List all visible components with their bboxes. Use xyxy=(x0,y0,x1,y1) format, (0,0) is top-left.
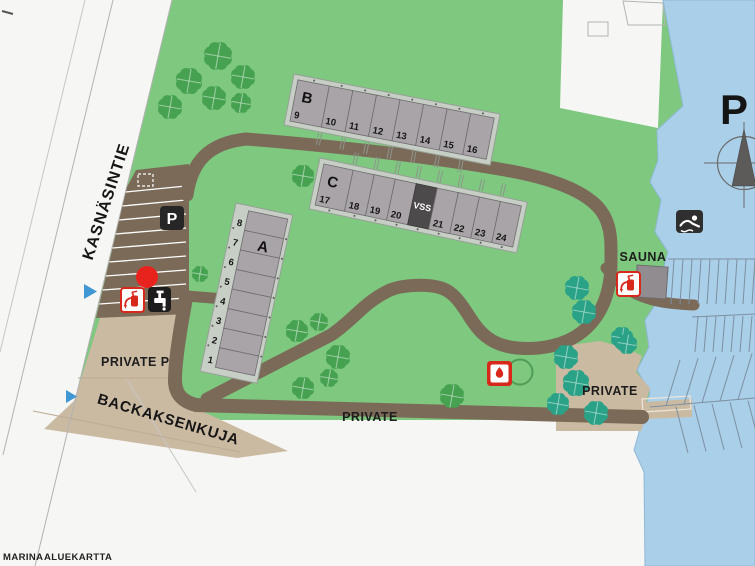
unit-number: 10 xyxy=(324,116,336,129)
parking-sign-letter: P xyxy=(167,211,178,228)
unit-number: 22 xyxy=(453,222,466,235)
unit-number: 19 xyxy=(369,205,382,218)
private-parking-label: PRIVATE P xyxy=(101,355,170,369)
unit-number: 13 xyxy=(395,130,407,143)
headland-area xyxy=(560,0,663,128)
sauna-label: SAUNA xyxy=(620,250,667,264)
map-edge-mark xyxy=(2,11,13,14)
guest-marina-parking-label: P xyxy=(720,86,748,133)
direction-marker-icon xyxy=(84,284,97,299)
unit-number: 23 xyxy=(474,227,487,240)
map-title-word1: MARINA xyxy=(3,552,43,563)
map-title-word2: ALUEKARTTA xyxy=(44,552,112,563)
site-map: 87654321 A 910111213141516 B 17181920VSS… xyxy=(0,0,755,566)
water-tap-icon xyxy=(148,287,171,312)
unit-number: 17 xyxy=(318,194,331,207)
unit-number: 20 xyxy=(390,209,403,222)
private-road-label: PRIVATE xyxy=(342,410,398,424)
unit-number: 12 xyxy=(372,125,384,138)
unit-number: 18 xyxy=(348,200,361,213)
swimming-icon xyxy=(676,210,703,233)
fire-extinguisher-icon xyxy=(617,272,640,296)
campfire-icon xyxy=(487,361,512,386)
red-point-marker xyxy=(136,266,158,288)
private-right-label: PRIVATE xyxy=(582,384,638,398)
fire-extinguisher-icon xyxy=(121,288,144,312)
map-canvas: 87654321 A 910111213141516 B 17181920VSS… xyxy=(0,0,755,566)
unit-number: 16 xyxy=(466,143,478,156)
parking-sign-icon: P xyxy=(160,206,184,230)
